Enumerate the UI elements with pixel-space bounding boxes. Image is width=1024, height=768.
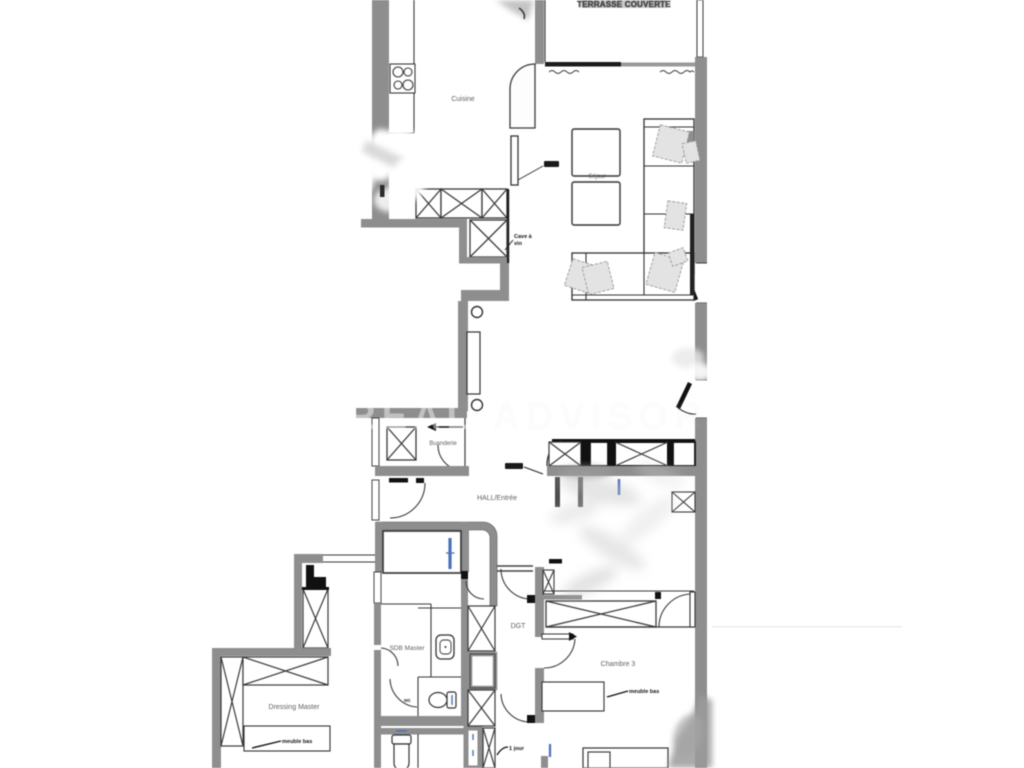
svg-text:Dressing Master: Dressing Master xyxy=(269,704,321,711)
svg-text:SDB Master: SDB Master xyxy=(389,645,425,652)
svg-text:Chambre 3: Chambre 3 xyxy=(601,661,636,668)
svg-text:vin: vin xyxy=(514,241,523,247)
svg-text:TERRASSE COUVERTE: TERRASSE COUVERTE xyxy=(577,0,671,9)
svg-text:meuble bas: meuble bas xyxy=(282,739,312,745)
svg-text:meuble bas: meuble bas xyxy=(629,689,659,695)
svg-text:HALL/Entrée: HALL/Entrée xyxy=(477,495,517,502)
svg-text:REAL: REAL xyxy=(348,396,475,438)
svg-text:ADVISOR: ADVISOR xyxy=(492,396,707,438)
svg-text:1 jour: 1 jour xyxy=(509,746,525,752)
svg-text:DGT: DGT xyxy=(511,623,527,630)
svg-text:Séjour: Séjour xyxy=(588,174,605,180)
svg-text:Buanderie: Buanderie xyxy=(429,441,457,447)
svg-text:Cave à: Cave à xyxy=(514,234,533,240)
svg-text:Cuisine: Cuisine xyxy=(451,96,474,103)
